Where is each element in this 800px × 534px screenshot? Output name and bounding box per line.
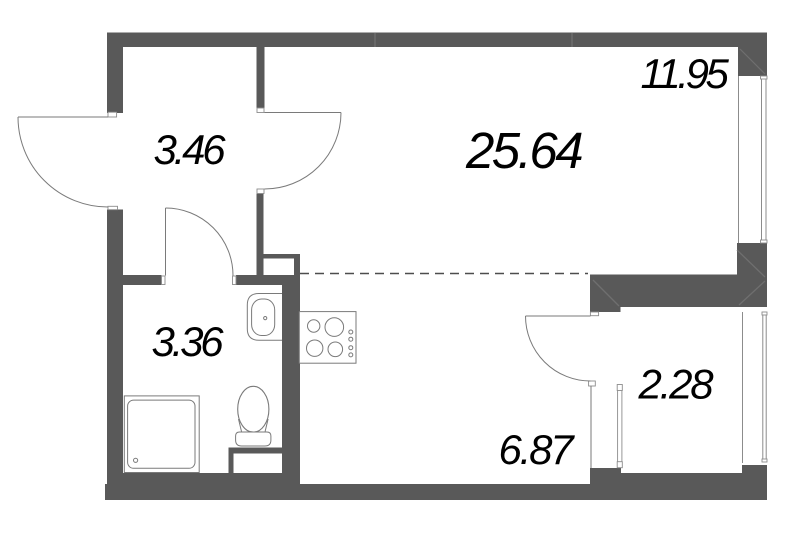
svg-text:3.36: 3.36 bbox=[152, 318, 225, 365]
svg-text:25.64: 25.64 bbox=[465, 122, 582, 179]
svg-text:6.87: 6.87 bbox=[499, 426, 576, 473]
svg-text:3.46: 3.46 bbox=[154, 126, 227, 173]
svg-text:11.95: 11.95 bbox=[641, 50, 730, 97]
svg-text:2.28: 2.28 bbox=[638, 360, 715, 407]
